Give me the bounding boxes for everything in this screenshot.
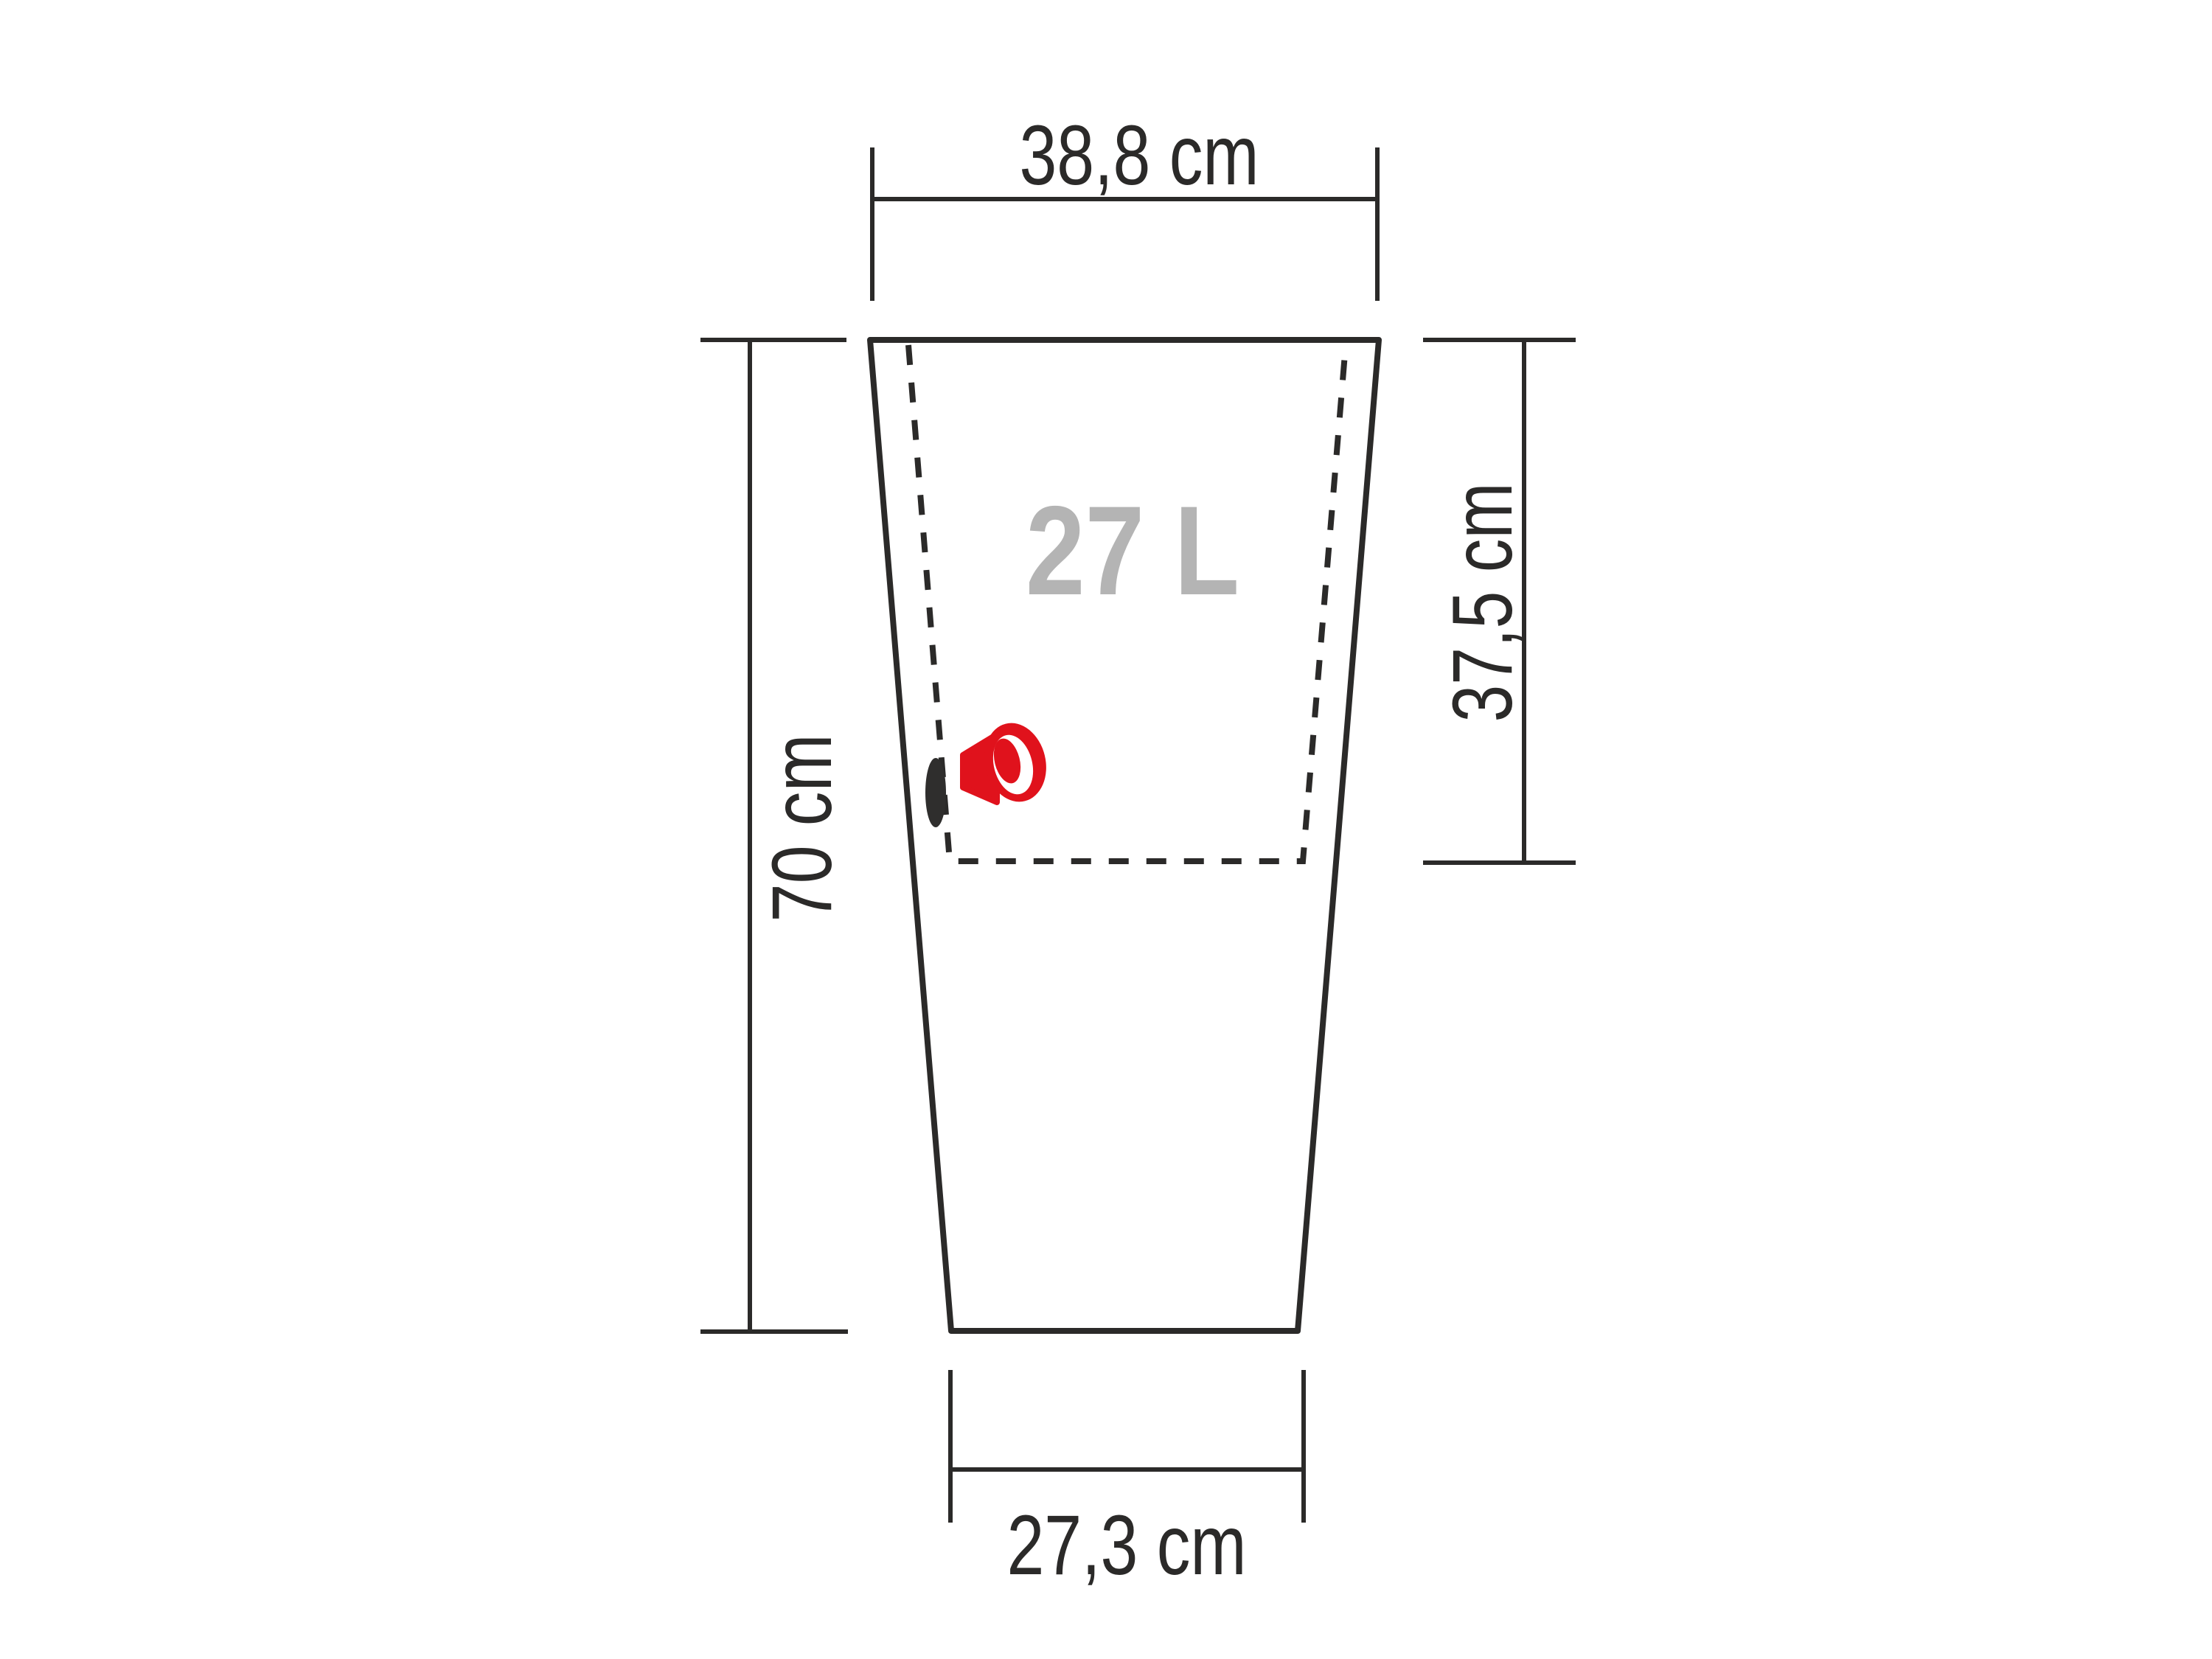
top-width-label: 38,8 cm	[1020, 108, 1259, 203]
planter-dimension-diagram: 27 L 38,8 cm 70 cm 37	[0, 0, 2212, 1659]
diagram-stage: 27 L 38,8 cm 70 cm 37	[0, 0, 2212, 1659]
bottom-width-label: 27,3 cm	[1007, 1498, 1247, 1593]
dimension-inner-depth: 37,5 cm	[1423, 340, 1576, 863]
dimension-bottom-width: 27,3 cm	[950, 1370, 1304, 1593]
drain-hole	[925, 758, 946, 827]
dimension-height: 70 cm	[700, 340, 849, 1332]
capacity-label: 27 L	[1026, 480, 1239, 622]
height-label: 70 cm	[755, 734, 849, 922]
inner-depth-label: 37,5 cm	[1436, 483, 1530, 723]
dimension-top-width: 38,8 cm	[872, 108, 1377, 301]
